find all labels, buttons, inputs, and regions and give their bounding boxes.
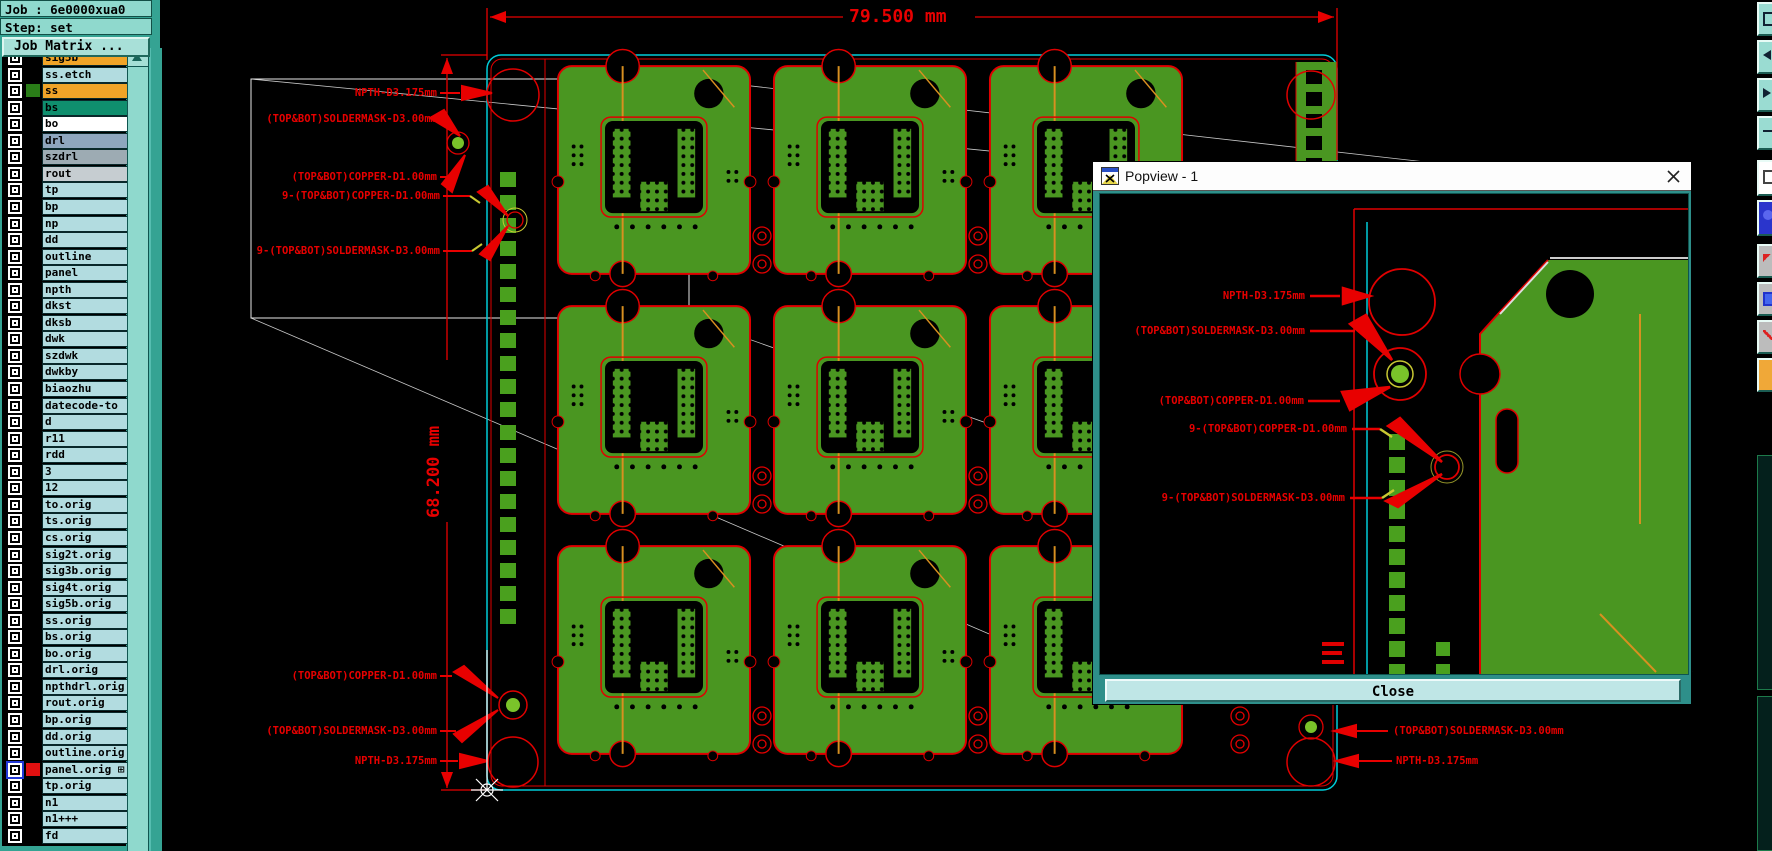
layer-row-rout[interactable]: rout: [2, 166, 126, 182]
annotation-copper9-top: 9-(TOP&BOT)COPPER-D1.00mm: [282, 190, 440, 202]
layer-checkbox[interactable]: [8, 415, 22, 429]
annotation-npth-bottom-right: NPTH-D3.175mm: [1396, 755, 1478, 767]
layer-color-swatch: [26, 349, 40, 362]
layer-color-swatch: [26, 250, 40, 263]
layer-sidebar: sig5bss.etchssbsbodrlszdrlrouttpbpnpddou…: [0, 0, 160, 851]
layer-checkbox[interactable]: [8, 68, 22, 82]
layer-checkbox[interactable]: [8, 481, 22, 495]
layer-row-tp[interactable]: tp: [2, 182, 126, 198]
layer-checkbox[interactable]: [8, 399, 22, 413]
layer-checkbox[interactable]: [8, 614, 22, 628]
layer-checkbox[interactable]: [8, 266, 22, 280]
layer-row-rout.orig[interactable]: rout.orig: [2, 695, 126, 711]
right-toolbar: [1755, 0, 1772, 851]
popview-close-button[interactable]: Close: [1105, 679, 1681, 702]
layer-color-swatch: [26, 233, 40, 246]
pan-right-button[interactable]: [1757, 78, 1772, 112]
layer-label[interactable]: to.orig: [42, 497, 130, 513]
sidebar-right-edge: [149, 48, 162, 851]
layer-checkbox[interactable]: [8, 531, 22, 545]
layer-label[interactable]: szdwk: [42, 348, 130, 364]
layer-label[interactable]: fd: [42, 828, 130, 844]
layer-checkbox[interactable]: [8, 217, 22, 231]
arrow-left-icon: [1763, 50, 1771, 60]
layer-row-bs[interactable]: bs: [2, 100, 126, 116]
layer-checkbox[interactable]: [8, 332, 22, 346]
draw-tool-button[interactable]: [1757, 320, 1772, 354]
window-icon: [1763, 12, 1772, 26]
layer-label[interactable]: sig2t.orig: [42, 547, 130, 563]
layer-checkbox[interactable]: [8, 233, 22, 247]
layer-row-bo.orig[interactable]: bo.orig: [2, 646, 126, 662]
layer-label[interactable]: dd: [42, 232, 130, 248]
layer-label[interactable]: dksb: [42, 315, 130, 331]
layer-checkbox[interactable]: [8, 696, 22, 710]
popview-window-icon: [1101, 167, 1119, 185]
layer-checkbox[interactable]: [8, 647, 22, 661]
layer-color-swatch: [26, 299, 40, 312]
layer-label[interactable]: ss.etch: [42, 67, 130, 83]
annotation-soldermask9-top: 9-(TOP&BOT)SOLDERMASK-D3.00mm: [257, 245, 440, 257]
layer-color-swatch: [26, 266, 40, 279]
layer-color-swatch: [26, 763, 40, 776]
popview-window: Popview - 1: [1092, 161, 1692, 705]
highlight-tool-button[interactable]: [1757, 358, 1772, 392]
red-slash-icon: [1763, 330, 1772, 340]
layer-checkbox[interactable]: [8, 746, 22, 760]
layer-label[interactable]: dd.orig: [42, 729, 130, 745]
layer-label[interactable]: dkst: [42, 298, 130, 314]
layer-row-sig3b.orig[interactable]: sig3b.orig: [2, 563, 126, 579]
popup-annotation-soldermask9: 9-(TOP&BOT)SOLDERMASK-D3.00mm: [1162, 492, 1345, 504]
layer-checkbox[interactable]: [8, 316, 22, 330]
layer-color-swatch: [26, 101, 40, 114]
popview-canvas[interactable]: NPTH-D3.175mm (TOP&BOT)SOLDERMASK-D3.00m…: [1099, 193, 1689, 675]
panel-height-dimension-label: 68.200 mm: [424, 426, 444, 518]
layer-label[interactable]: panel: [42, 265, 130, 281]
layer-row-dwk[interactable]: dwk: [2, 331, 126, 347]
layer-row-to.orig[interactable]: to.orig: [2, 497, 126, 513]
layer-color-swatch: [26, 68, 40, 81]
layer-label[interactable]: n1: [42, 795, 130, 811]
layer-row-sig4t.orig[interactable]: sig4t.orig: [2, 580, 126, 596]
layer-color-swatch: [26, 564, 40, 577]
layer-color-swatch: [26, 746, 40, 759]
panel-width-dimension-label: 79.500 mm: [845, 6, 951, 27]
layer-row-panel[interactable]: panel: [2, 265, 126, 281]
layer-row-outline.orig[interactable]: outline.orig: [2, 745, 126, 761]
red-pen-icon: [1763, 254, 1772, 264]
layer-checkbox[interactable]: [8, 663, 22, 677]
annotation-copper-bottom: (TOP&BOT)COPPER-D1.00mm: [292, 670, 437, 682]
popup-annotation-copper9: 9-(TOP&BOT)COPPER-D1.00mm: [1189, 423, 1347, 435]
layer-checkbox[interactable]: [8, 779, 22, 793]
right-side-panel-lower: [1757, 696, 1772, 851]
layer-label[interactable]: datecode-to: [42, 398, 130, 414]
orange-blank-icon: [1763, 368, 1772, 378]
layer-label[interactable]: n1+++: [42, 811, 130, 827]
layer-color-swatch: [26, 514, 40, 527]
layer-row-drl.orig[interactable]: drl.orig: [2, 662, 126, 678]
layer-checkbox[interactable]: [8, 134, 22, 148]
layer-checkbox[interactable]: [8, 448, 22, 462]
layer-color-swatch: [26, 663, 40, 676]
layer-label[interactable]: r11: [42, 431, 130, 447]
layer-color-swatch: [26, 84, 40, 97]
layer-color-swatch: [26, 134, 40, 147]
layer-row-npthdrl.orig[interactable]: npthdrl.orig: [2, 679, 126, 695]
layer-row-panel.orig[interactable]: panel.orig ⊞: [2, 762, 126, 778]
layer-checkbox[interactable]: [8, 349, 22, 363]
layer-label[interactable]: tp.orig: [42, 778, 130, 794]
layer-label[interactable]: dwk: [42, 331, 130, 347]
layer-label[interactable]: bo.orig: [42, 646, 130, 662]
layer-color-swatch: [26, 531, 40, 544]
annotation-soldermask-bottom: (TOP&BOT)SOLDERMASK-D3.00mm: [266, 725, 437, 737]
layer-label[interactable]: drl.orig: [42, 662, 130, 678]
layer-row-outline[interactable]: outline: [2, 249, 126, 265]
layer-checkbox[interactable]: [8, 465, 22, 479]
layer-label[interactable]: tp: [42, 182, 130, 198]
layer-label[interactable]: ss.orig: [42, 613, 130, 629]
layer-row-ts.orig[interactable]: ts.orig: [2, 513, 126, 529]
layer-checkbox[interactable]: [8, 730, 22, 744]
popup-annotation-copper: (TOP&BOT)COPPER-D1.00mm: [1159, 395, 1304, 407]
layer-checkbox[interactable]: [8, 514, 22, 528]
layer-color-swatch: [26, 680, 40, 693]
wave-tool-button[interactable]: [1757, 116, 1772, 150]
layer-color-swatch: [26, 316, 40, 329]
layer-label[interactable]: outline: [42, 249, 130, 265]
layer-row-rdd[interactable]: rdd: [2, 447, 126, 463]
layer-color-swatch: [26, 812, 40, 825]
layer-color-swatch: [26, 448, 40, 461]
layer-color-swatch: [26, 647, 40, 660]
white-frame-icon: [1763, 170, 1772, 184]
layer-label[interactable]: bo: [42, 116, 130, 132]
layer-row-npth[interactable]: npth: [2, 282, 126, 298]
layer-label[interactable]: outline.orig: [42, 745, 130, 761]
layer-color-swatch: [26, 283, 40, 296]
blue-shape-icon: [1763, 210, 1772, 220]
annotation-soldermask-top: (TOP&BOT)SOLDERMASK-D3.00mm: [266, 113, 437, 125]
layer-color-swatch: [26, 597, 40, 610]
job-name-field: Job : 6e0000xua0: [0, 0, 152, 17]
layer-row-bo[interactable]: bo: [2, 116, 126, 132]
right-side-panel-upper: [1757, 455, 1772, 690]
step-name-field: Step: set: [0, 18, 152, 35]
layer-checkbox[interactable]: [8, 829, 22, 843]
layer-color-swatch: [26, 167, 40, 180]
layer-row-n1+++[interactable]: n1+++: [2, 811, 126, 827]
layer-row-bp[interactable]: bp: [2, 199, 126, 215]
layer-color-swatch: [26, 415, 40, 428]
layer-color-swatch: [26, 796, 40, 809]
layer-checkbox[interactable]: [8, 183, 22, 197]
layer-label[interactable]: bs: [42, 100, 130, 116]
layer-checkbox[interactable]: [8, 564, 22, 578]
layer-label[interactable]: dwkby: [42, 364, 130, 380]
layer-row-cs.orig[interactable]: cs.orig: [2, 530, 126, 546]
layer-checkbox[interactable]: [8, 812, 22, 826]
layer-checkbox[interactable]: [8, 283, 22, 297]
layer-color-swatch: [26, 481, 40, 494]
layer-checkbox[interactable]: [8, 117, 22, 131]
layer-row-drl[interactable]: drl: [2, 133, 126, 149]
layer-label[interactable]: bp: [42, 199, 130, 215]
layer-color-swatch: [26, 150, 40, 163]
layer-label[interactable]: rdd: [42, 447, 130, 463]
layer-row-np[interactable]: np: [2, 216, 126, 232]
popup-annotation-soldermask: (TOP&BOT)SOLDERMASK-D3.00mm: [1134, 325, 1305, 337]
annotation-npth-top: NPTH-D3.175mm: [355, 87, 437, 99]
layer-label[interactable]: bs.orig: [42, 629, 130, 645]
height-dimension: [441, 55, 487, 790]
layer-label[interactable]: sig3b.orig: [42, 563, 130, 579]
layer-row-tp.orig[interactable]: tp.orig: [2, 778, 126, 794]
layer-label[interactable]: sig4t.orig: [42, 580, 130, 596]
layer-checkbox[interactable]: [8, 548, 22, 562]
blue-box-icon: [1763, 292, 1772, 306]
cam-application-window: 79.500 mm 68.200 mm NPTH-D3.175mm (TOP&B…: [0, 0, 1772, 851]
layer-label[interactable]: ts.orig: [42, 513, 130, 529]
layer-row-datecode-to[interactable]: datecode-to: [2, 398, 126, 414]
layer-color-swatch: [26, 696, 40, 709]
layer-checkbox[interactable]: [8, 630, 22, 644]
layer-color-swatch: [26, 382, 40, 395]
layer-label[interactable]: szdrl: [42, 149, 130, 165]
layer-label[interactable]: bp.orig: [42, 712, 130, 728]
layer-color-swatch: [26, 548, 40, 561]
layer-checkbox[interactable]: [8, 498, 22, 512]
layer-row-d[interactable]: d: [2, 414, 126, 430]
annotation-npth-bottom: NPTH-D3.175mm: [355, 755, 437, 767]
layer-color-swatch: [26, 200, 40, 213]
layer-row-n1[interactable]: n1: [2, 795, 126, 811]
layer-checkbox[interactable]: [8, 763, 22, 777]
close-icon[interactable]: [1666, 169, 1681, 184]
layer-checkbox[interactable]: [8, 680, 22, 694]
layer-label[interactable]: panel.orig ⊞: [42, 762, 130, 778]
layer-label[interactable]: rout: [42, 166, 130, 182]
layer-color-swatch: [26, 829, 40, 842]
job-matrix-button[interactable]: Job Matrix ...: [2, 37, 150, 57]
blank-view-button[interactable]: [1757, 160, 1772, 196]
layer-row-bp.orig[interactable]: bp.orig: [2, 712, 126, 728]
layer-row-dd.orig[interactable]: dd.orig: [2, 729, 126, 745]
layer-row-12[interactable]: 12: [2, 480, 126, 496]
layer-checkbox[interactable]: [8, 250, 22, 264]
layer-row-dksb[interactable]: dksb: [2, 315, 126, 331]
layer-checkbox[interactable]: [8, 150, 22, 164]
layer-color-swatch: [26, 730, 40, 743]
layer-checkbox[interactable]: [8, 796, 22, 810]
layer-color-swatch: [26, 713, 40, 726]
popup-annotation-npth: NPTH-D3.175mm: [1223, 290, 1305, 302]
popview-titlebar[interactable]: Popview - 1: [1093, 162, 1691, 191]
layer-row-3[interactable]: 3: [2, 464, 126, 480]
layer-label[interactable]: drl: [42, 133, 130, 149]
blue-tool-button[interactable]: [1757, 200, 1772, 236]
layer-color-swatch: [26, 498, 40, 511]
layer-color-swatch: [26, 465, 40, 478]
layer-row-ss.orig[interactable]: ss.orig: [2, 613, 126, 629]
layer-label[interactable]: cs.orig: [42, 530, 130, 546]
select-tool-button[interactable]: [1757, 282, 1772, 316]
layer-label[interactable]: 3: [42, 464, 130, 480]
layer-row-ss.etch[interactable]: ss.etch: [2, 67, 126, 83]
layer-color-swatch: [26, 432, 40, 445]
layer-color-swatch: [26, 581, 40, 594]
layer-label[interactable]: np: [42, 216, 130, 232]
layer-color-swatch: [26, 117, 40, 130]
layer-row-dwkby[interactable]: dwkby: [2, 364, 126, 380]
layer-checkbox[interactable]: [8, 200, 22, 214]
layer-checkbox[interactable]: [8, 382, 22, 396]
layer-row-dkst[interactable]: dkst: [2, 298, 126, 314]
wave-icon: [1763, 126, 1772, 132]
layer-checkbox[interactable]: [8, 365, 22, 379]
annotation-copper-top: (TOP&BOT)COPPER-D1.00mm: [292, 171, 437, 183]
layer-checkbox[interactable]: [8, 713, 22, 727]
layer-row-szdwk[interactable]: szdwk: [2, 348, 126, 364]
layer-label[interactable]: npthdrl.orig: [42, 679, 130, 695]
layer-row-szdrl[interactable]: szdrl: [2, 149, 126, 165]
layer-list-scrollbar[interactable]: [127, 48, 149, 851]
layer-label[interactable]: npth: [42, 282, 130, 298]
layer-row-sig2t.orig[interactable]: sig2t.orig: [2, 547, 126, 563]
layer-color-swatch: [26, 183, 40, 196]
annotation-soldermask-bottom-right: (TOP&BOT)SOLDERMASK-D3.00mm: [1393, 725, 1564, 737]
layer-color-swatch: [26, 365, 40, 378]
layer-color-swatch: [26, 332, 40, 345]
layer-checkbox[interactable]: [8, 597, 22, 611]
arrow-right-bar-icon: [1763, 88, 1771, 98]
layer-label[interactable]: 12: [42, 480, 130, 496]
layer-row-biaozhu[interactable]: biaozhu: [2, 381, 126, 397]
layer-checkbox[interactable]: [8, 84, 22, 98]
layer-label[interactable]: ss: [42, 83, 130, 99]
layer-color-swatch: [26, 399, 40, 412]
layer-color-swatch: [26, 217, 40, 230]
layer-checkbox[interactable]: [8, 432, 22, 446]
layer-checkbox[interactable]: [8, 299, 22, 313]
layer-row-fd[interactable]: fd: [2, 828, 126, 844]
layer-row-bs.orig[interactable]: bs.orig: [2, 629, 126, 645]
layer-color-swatch: [26, 614, 40, 627]
layer-row-sig5b.orig[interactable]: sig5b.orig: [2, 596, 126, 612]
layer-row-dd[interactable]: dd: [2, 232, 126, 248]
layer-color-swatch: [26, 779, 40, 792]
layer-color-swatch: [26, 630, 40, 643]
layer-checkbox[interactable]: [8, 167, 22, 181]
layer-checkbox[interactable]: [8, 101, 22, 115]
measure-tool-button[interactable]: [1757, 244, 1772, 278]
layer-label[interactable]: sig5b.orig: [42, 596, 130, 612]
layer-checkbox[interactable]: [8, 581, 22, 595]
layer-label[interactable]: biaozhu: [42, 381, 130, 397]
layer-label[interactable]: rout.orig: [42, 695, 130, 711]
pan-left-button[interactable]: [1757, 40, 1772, 74]
layer-row-r11[interactable]: r11: [2, 431, 126, 447]
popview-title: Popview - 1: [1125, 168, 1198, 184]
layer-label[interactable]: d: [42, 414, 130, 430]
window-tool-button[interactable]: [1757, 2, 1772, 36]
layer-row-ss[interactable]: ss: [2, 83, 126, 99]
